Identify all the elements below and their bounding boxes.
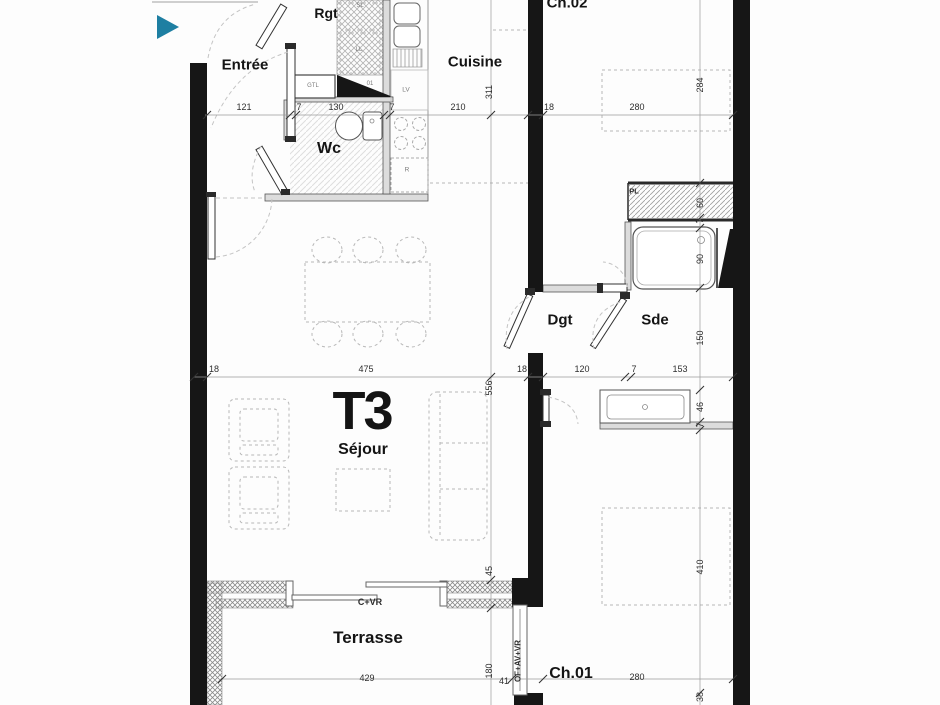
terrace-top-wall-hatch	[216, 599, 293, 608]
chair	[396, 321, 426, 347]
sde-door-leaf	[590, 297, 626, 348]
entry-door-leaf	[256, 4, 287, 49]
armchair	[229, 467, 289, 529]
dishwasher-box	[391, 70, 428, 110]
door-pivots	[206, 43, 630, 427]
doors	[206, 4, 630, 427]
terrace-top-wall-hatch	[207, 581, 291, 593]
chair	[312, 321, 342, 347]
sink-drainer	[393, 49, 422, 67]
sliding-window-panel	[366, 582, 447, 587]
bed-ch01	[602, 508, 730, 605]
armchair-seat	[240, 477, 278, 509]
dining-table	[305, 262, 430, 322]
floor-plan-canvas: EntréeRgtCuisineCh.02WcDgtSdeT3SéjourTer…	[0, 0, 940, 705]
cooktop	[395, 118, 426, 150]
window-post	[286, 581, 293, 606]
toilet-bowl	[336, 112, 363, 140]
pl-closet-hatch	[629, 185, 733, 218]
rgt-closet-hatch	[337, 0, 383, 75]
coffee-table	[336, 469, 390, 511]
wall-terrace-corner	[512, 578, 543, 607]
floor-plan-drawing	[0, 0, 940, 705]
wall-center-upper	[528, 0, 543, 292]
armchair-front	[240, 445, 278, 455]
bed-ch02	[602, 70, 730, 131]
chair	[353, 321, 383, 347]
toilet-tank	[363, 112, 382, 140]
terrace-top-wall-hatch	[447, 599, 517, 608]
armchair	[229, 399, 289, 461]
fridge-box	[391, 158, 428, 192]
partition-sejour-north	[265, 194, 428, 201]
kitchen-sink	[394, 3, 420, 24]
sofa	[429, 392, 487, 540]
wall-shower-angle	[718, 229, 737, 288]
chair	[312, 237, 342, 263]
gtl-box	[293, 75, 335, 98]
wc-door-leaf	[256, 146, 288, 195]
kitchen-sink	[394, 26, 420, 47]
chair	[396, 237, 426, 263]
terrace-top-wall-hatch	[447, 581, 512, 593]
sejour-door-leaf	[208, 196, 215, 259]
rgt-door-leaf	[287, 48, 295, 137]
wall-east	[733, 0, 750, 705]
wall-center-lower	[528, 353, 543, 582]
ch01-door-leaf	[543, 395, 549, 422]
shower-tray	[633, 227, 715, 289]
sliding-window-panel	[292, 595, 377, 600]
play-triangle-icon[interactable]	[157, 15, 179, 39]
ch02-door-leaf	[602, 284, 627, 292]
armchair-seat	[240, 409, 278, 441]
armchair-front	[240, 513, 278, 523]
chair	[353, 237, 383, 263]
wall-west	[190, 63, 207, 705]
dgt-door-leaf	[504, 294, 533, 349]
partition-ch02-south	[543, 285, 602, 292]
